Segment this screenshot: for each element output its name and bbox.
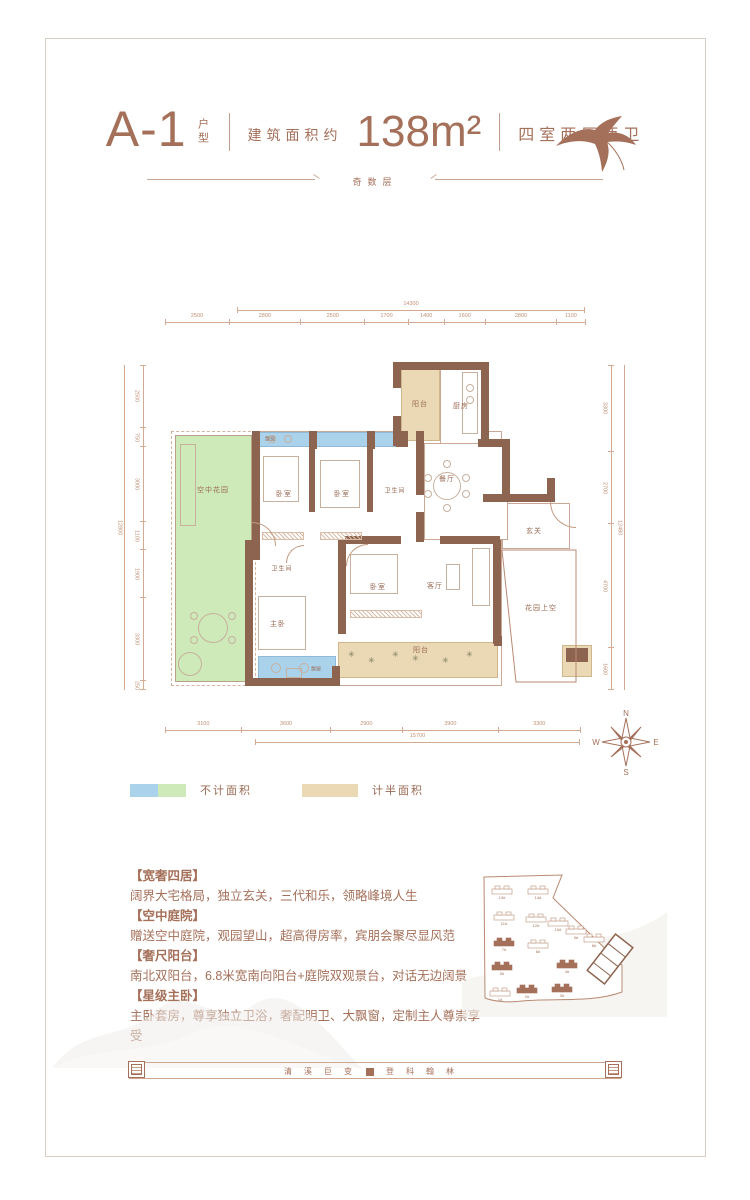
room-label-bay_window_bottom: 飘窗	[311, 666, 321, 673]
furniture-circle	[443, 460, 451, 468]
wall-segment	[547, 478, 555, 502]
feature-desc: 赠送空中庭院，观园望山，超高得房率，宾朋会聚尽显风范	[130, 926, 490, 946]
compass-n: N	[623, 709, 629, 718]
area-legend: 不计面积 计半面积	[130, 782, 424, 798]
room-label-garden_void: 花园上空	[525, 603, 557, 613]
compass-w: W	[592, 738, 600, 747]
legend-green-swatch	[158, 784, 186, 797]
furniture-circle	[178, 652, 202, 676]
plant-icon: ✳	[392, 650, 399, 659]
header-divider	[499, 113, 500, 151]
room-label-living: 客厅	[427, 581, 443, 591]
window-sill-hatch	[350, 610, 422, 618]
wall-segment	[367, 431, 375, 449]
wall-segment	[493, 540, 501, 644]
area-value: 138m²	[357, 113, 482, 150]
plant-icon: ✳	[368, 656, 375, 665]
site-building-label: 3#	[560, 993, 565, 998]
site-building-label: 2#	[525, 994, 530, 999]
room-label-bay_window_top: 飘窗	[265, 436, 275, 443]
wall-segment	[494, 636, 502, 646]
room-label-bedroom_b: 卧室	[334, 489, 350, 499]
wall-segment	[338, 540, 346, 634]
garden-void-outline	[110, 298, 655, 768]
site-building-label: 7#	[502, 947, 507, 952]
wall-segment	[309, 431, 317, 449]
furniture-circle	[462, 490, 470, 498]
compass-s: S	[623, 768, 628, 776]
feature-title: 【宽奢四居】	[130, 866, 490, 886]
feature-title: 【空中庭院】	[130, 906, 490, 926]
room-label-bath_b: 卫生间	[271, 564, 292, 573]
plant-icon: ✳	[348, 650, 355, 659]
poster-page: A-1 户型 建筑面积约 138m² 四室两厅两卫 奇数层 14300 2500…	[0, 0, 750, 1200]
site-building-label: 5#	[500, 971, 505, 976]
room-label-kitchen: 厨房	[453, 401, 469, 411]
furniture-circle	[466, 384, 474, 392]
compass-icon: N E S W	[592, 708, 660, 776]
plant-icon: ✳	[412, 654, 419, 663]
furniture-circle	[190, 636, 198, 644]
swallow-icon	[552, 116, 636, 174]
furniture-circle	[284, 435, 292, 443]
room-label-foyer: 玄关	[526, 526, 542, 536]
room-label-balcony_top: 阳台	[412, 399, 428, 409]
mountain-watermark-left	[52, 948, 362, 1068]
room-label-sky_garden: 空中花园	[197, 485, 229, 495]
furniture	[320, 460, 360, 508]
plant-icon: ✳	[466, 650, 473, 659]
wall-segment	[245, 540, 253, 686]
wall-segment	[252, 678, 340, 686]
wall-segment	[416, 512, 424, 542]
wall-segment	[396, 431, 408, 447]
header: A-1 户型 建筑面积约 138m² 四室两厅两卫 奇数层	[0, 108, 750, 185]
site-building-label: 14#	[535, 895, 542, 900]
furniture-circle	[462, 474, 470, 482]
furniture-circle	[190, 612, 198, 620]
room-label-balcony_bottom: 阳台	[413, 645, 429, 655]
legend-tan-swatch	[302, 784, 358, 797]
furniture-circle	[424, 474, 432, 482]
site-building-label: 13#	[499, 895, 506, 900]
site-plan: 13#14#11#12#10#9#8#7#6#5#4#1#2#3#	[462, 862, 667, 1037]
furniture-circle	[228, 636, 236, 644]
furniture	[446, 564, 460, 590]
header-divider	[229, 113, 230, 151]
furniture	[180, 444, 196, 526]
room-label-master: 主卧	[270, 619, 286, 629]
furniture-circle	[198, 613, 228, 643]
legend-blue-swatch	[130, 784, 158, 797]
furniture	[472, 548, 490, 606]
room-label-bedroom_c: 卧室	[370, 582, 386, 592]
site-building-label: 11#	[501, 921, 508, 926]
site-building-label: 10#	[555, 927, 562, 932]
wall-segment	[483, 494, 555, 502]
compass-e: E	[653, 738, 658, 747]
footer-slogan-right: 登科翰林	[386, 1066, 466, 1077]
unit-type-label: 户型	[195, 115, 211, 151]
feature-desc: 阔界大宅格局，独立玄关，三代和乐，领略峰境人生	[130, 886, 490, 906]
site-building-label: 4#	[565, 969, 570, 974]
footer-slogan-left: 清溪巨变	[284, 1066, 364, 1077]
floor-note: 奇数层	[147, 175, 603, 188]
wall-segment	[478, 439, 510, 447]
site-building-label: 9#	[574, 935, 579, 940]
unit-name: A-1	[106, 108, 187, 151]
wall-segment	[416, 431, 424, 495]
wall-segment	[332, 666, 340, 686]
legend-not-counted-label: 不计面积	[200, 782, 252, 798]
wall-segment	[502, 447, 510, 495]
room-label-dining: 餐厅	[439, 474, 455, 484]
footer-band: 清溪巨变 登科翰林	[129, 1062, 621, 1079]
room-label-bath_a: 卫生间	[384, 486, 405, 495]
furniture-circle	[299, 663, 309, 673]
wall-segment	[398, 362, 488, 370]
site-building-label: 6#	[536, 949, 541, 954]
floor-note-rule: 奇数层	[147, 173, 603, 185]
wall-segment	[393, 362, 401, 388]
furniture-circle	[443, 504, 451, 512]
site-building-label: 1#	[498, 997, 503, 1002]
site-building-label: 8#	[592, 943, 597, 948]
floor-plan: 14300 25002800250017001400160028001100 3…	[110, 298, 655, 768]
plant-icon: ✳	[442, 656, 449, 665]
brand-seal-icon	[366, 1068, 374, 1076]
seal-icon-right	[605, 1061, 622, 1078]
window-sill-hatch	[320, 532, 362, 540]
furniture-circle	[424, 490, 432, 498]
room-label-bedroom_a: 卧室	[276, 489, 292, 499]
wall-segment	[440, 536, 500, 544]
area-prefix-label: 建筑面积约	[248, 125, 343, 151]
furniture-circle	[228, 612, 236, 620]
furniture-circle	[271, 663, 281, 673]
site-building-label: 12#	[533, 923, 540, 928]
wall-segment	[367, 448, 373, 512]
wall-segment	[481, 362, 489, 446]
legend-half-counted-label: 计半面积	[372, 782, 424, 798]
wall-segment	[309, 448, 315, 512]
